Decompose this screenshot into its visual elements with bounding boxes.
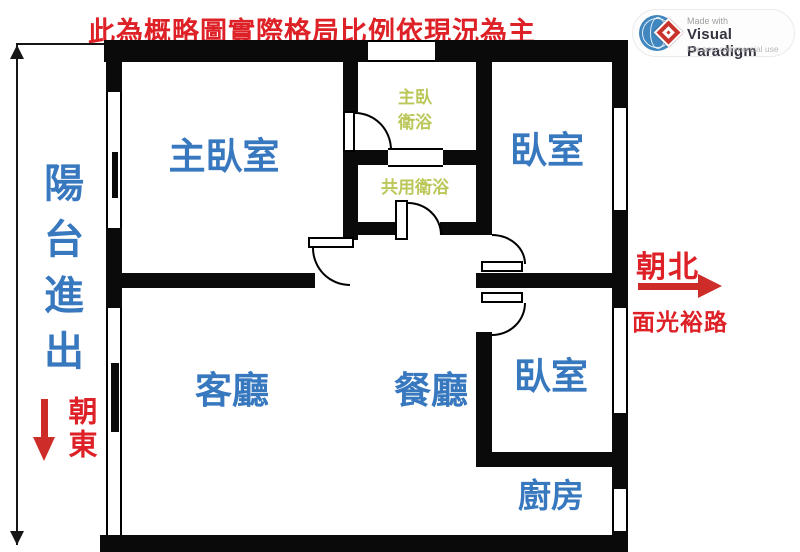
wall-hall-divider <box>476 273 628 288</box>
wall-masterbath-left-upper <box>343 40 358 112</box>
label-dining-room: 餐廳 <box>351 371 511 412</box>
label-bedroom-bottom: 臥室 <box>491 357 611 398</box>
wall-right-2 <box>612 210 628 308</box>
wall-top <box>104 40 628 62</box>
label-shared-bath: 共用衛浴 <box>355 176 475 201</box>
label-master-bedroom: 主臥室 <box>144 137 304 178</box>
wall-bedroom-bottom-bottom <box>476 452 612 467</box>
label-kitchen: 廚房 <box>491 478 611 514</box>
door-bedroom-bottom-leaf <box>481 292 523 303</box>
wall-bottom <box>100 535 628 552</box>
north-arrow-shaft <box>638 283 700 290</box>
wall-bath-divider-left <box>343 150 388 165</box>
label-facing-east: 朝東 <box>59 396 101 462</box>
door-masterbath-leaf <box>343 111 355 152</box>
wall-right-4 <box>612 531 628 552</box>
door-masterbedroom-arc <box>312 248 350 286</box>
dimension-arrow-down-icon <box>10 531 24 545</box>
door-masterbedroom-leaf <box>308 237 354 248</box>
visual-paradigm-badge: Made with Visual Paradigm For non-commer… <box>632 9 795 57</box>
balcony-top-line <box>16 43 110 45</box>
door-bedroom-top-arc <box>492 234 526 264</box>
wall-right-3 <box>612 413 628 489</box>
label-master-bath-line2: 衛浴 <box>375 111 455 136</box>
wall-right-1 <box>612 40 628 108</box>
east-arrow-icon <box>33 437 55 461</box>
window-mullion-masterbedroom <box>112 152 118 198</box>
door-bedroom-bottom-arc <box>492 303 526 336</box>
label-bedroom-top: 臥室 <box>487 131 607 172</box>
label-living-room: 客廳 <box>152 371 312 412</box>
door-sharedbath-leaf <box>395 200 408 240</box>
window-right-kitchen <box>612 489 628 531</box>
label-master-bath: 主臥 衛浴 <box>375 86 455 135</box>
window-mullion-livingroom <box>111 363 119 432</box>
dimension-arrow-up-icon <box>10 45 24 59</box>
wall-left-middle <box>106 228 122 308</box>
label-balcony: 陽台進出 <box>38 162 82 386</box>
window-bath-divider <box>388 148 443 167</box>
label-road: 面光裕路 <box>632 303 728 337</box>
window-right-middle <box>612 308 628 413</box>
floor-plan-canvas: 此為概略圖實際格局比例依現況為主 Made with Visual Paradi… <box>0 0 800 552</box>
east-arrow-shaft <box>41 399 48 439</box>
badge-brand: Visual Paradigm <box>687 26 794 60</box>
wall-left-upper <box>106 44 122 92</box>
door-sharedbath-arc <box>408 202 442 235</box>
window-right-upper <box>612 108 628 210</box>
dimension-arrow-line <box>16 45 18 545</box>
label-master-bath-line1: 主臥 <box>375 86 455 111</box>
north-arrow-icon <box>698 274 722 298</box>
window-masterbath-top <box>368 40 435 62</box>
badge-made-with: Made with <box>687 16 728 26</box>
badge-license: For non-commercial use <box>687 44 779 54</box>
wall-masterbedroom-bottom <box>106 273 315 288</box>
door-bedroom-top-leaf <box>481 261 523 272</box>
label-facing-north: 朝北 <box>636 242 700 286</box>
